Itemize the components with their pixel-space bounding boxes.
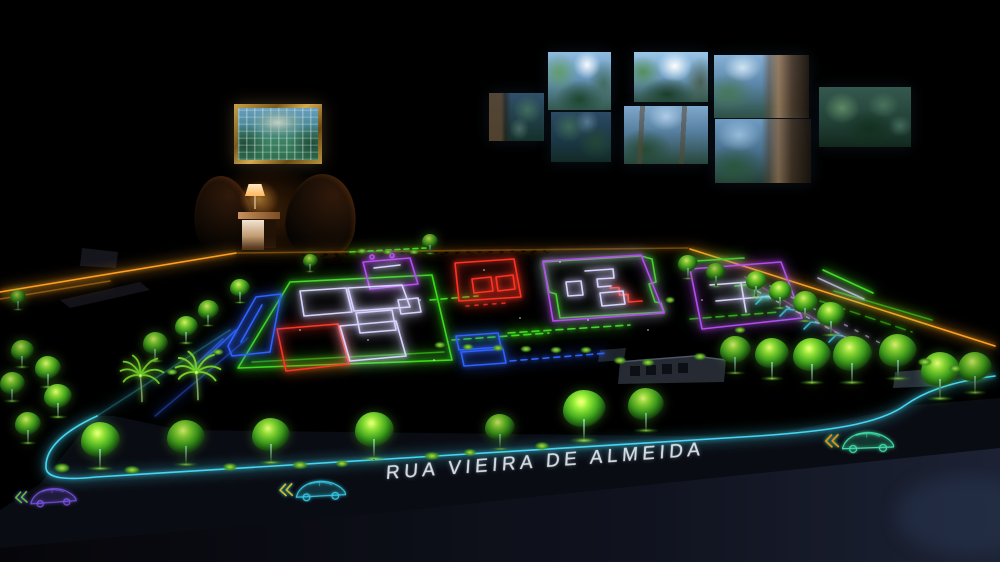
glowing-tree-icon xyxy=(879,334,917,380)
glowing-bush-icon xyxy=(916,357,934,367)
glowing-bush-icon xyxy=(533,441,551,451)
glowing-bush-icon xyxy=(640,358,656,367)
glowing-tree-icon xyxy=(833,336,872,384)
glowing-bush-icon xyxy=(122,465,141,476)
glowing-tree-icon xyxy=(252,418,290,464)
glowing-tree-icon xyxy=(422,234,438,254)
glowing-tree-icon xyxy=(817,302,845,336)
glowing-tree-icon xyxy=(755,338,789,380)
glowing-tree-icon xyxy=(11,340,34,368)
glowing-bush-icon xyxy=(356,248,367,254)
glowing-tree-icon xyxy=(678,255,698,279)
neon-car-icon xyxy=(275,474,352,504)
glowing-tree-icon xyxy=(175,316,198,344)
glowing-tree-icon xyxy=(44,384,72,418)
exhibition-room-scene: RUA VIEIRA DE ALMEIDA xyxy=(0,0,1000,562)
glowing-bush-icon xyxy=(382,249,393,255)
glowing-tree-icon xyxy=(769,281,792,309)
glowing-tree-icon xyxy=(793,291,818,322)
glowing-bush-icon xyxy=(334,459,350,468)
palm-tree-icon xyxy=(174,350,222,408)
glowing-bush-icon xyxy=(408,249,419,255)
neon-car-icon xyxy=(11,482,83,511)
glowing-tree-icon xyxy=(0,372,25,402)
glowing-bush-icon xyxy=(612,356,628,365)
palm-tree-icon xyxy=(119,354,165,410)
glowing-tree-icon xyxy=(303,254,318,272)
glowing-tree-icon xyxy=(720,336,751,374)
neon-car-icon xyxy=(822,426,901,456)
glowing-bush-icon xyxy=(664,296,677,303)
model-neon-overlay xyxy=(0,0,1000,562)
glowing-tree-icon xyxy=(563,390,606,442)
glowing-bush-icon xyxy=(462,448,478,457)
glowing-tree-icon xyxy=(15,412,41,444)
glowing-tree-icon xyxy=(746,271,767,297)
glowing-bush-icon xyxy=(221,462,239,472)
glowing-tree-icon xyxy=(793,338,831,384)
glowing-tree-icon xyxy=(485,414,515,450)
glowing-bush-icon xyxy=(947,364,963,373)
glowing-bush-icon xyxy=(290,460,309,471)
glowing-bush-icon xyxy=(692,352,708,361)
glowing-bush-icon xyxy=(52,462,73,474)
glowing-tree-icon xyxy=(81,422,120,470)
glowing-tree-icon xyxy=(958,352,992,394)
glowing-tree-icon xyxy=(10,290,26,310)
glowing-tree-icon xyxy=(167,420,205,466)
glowing-tree-icon xyxy=(706,263,726,287)
glowing-tree-icon xyxy=(230,279,250,303)
glowing-tree-icon xyxy=(355,412,394,460)
glowing-tree-icon xyxy=(628,388,664,432)
glowing-tree-icon xyxy=(198,300,219,326)
